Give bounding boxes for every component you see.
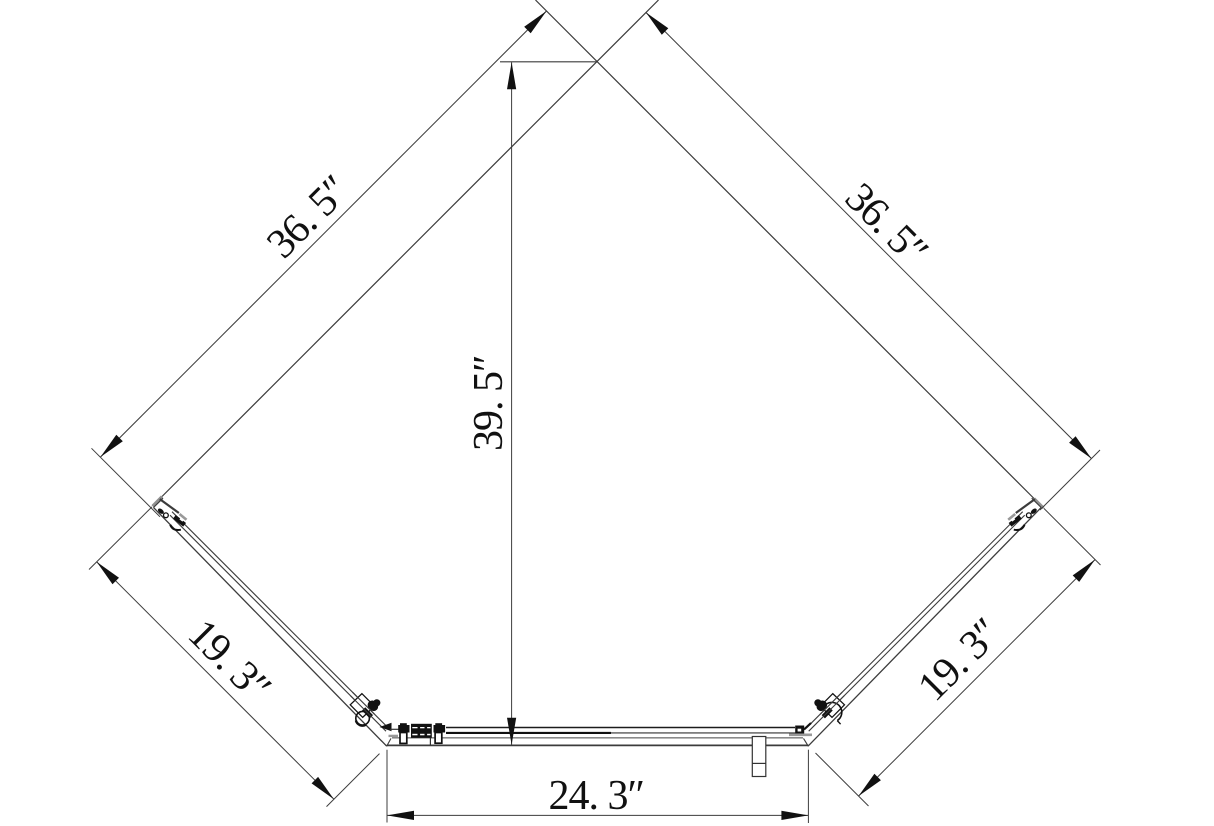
svg-text:36. 5″: 36. 5″	[258, 167, 358, 267]
svg-text:36. 5″: 36. 5″	[836, 175, 936, 275]
svg-text:39. 5″: 39. 5″	[466, 355, 512, 451]
svg-text:19. 3″: 19. 3″	[179, 611, 279, 711]
svg-text:24. 3″: 24. 3″	[548, 773, 644, 819]
